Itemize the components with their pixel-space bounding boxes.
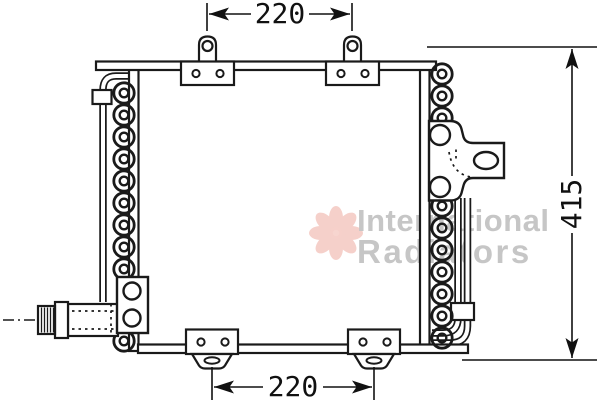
fitting-hex-nut <box>55 302 68 338</box>
technical-drawing-canvas: International Radiators <box>0 0 600 400</box>
fitting-thread <box>38 306 55 334</box>
dimension-label-height: 415 <box>555 179 588 230</box>
coil-loop <box>432 64 452 84</box>
pipe-junction-block <box>451 303 474 320</box>
mounting-bracket-bottom-right <box>348 330 400 369</box>
watermark-flower-logo <box>309 206 363 260</box>
inlet-fitting <box>3 277 148 338</box>
dimension-label-bottom: 220 <box>268 370 319 400</box>
coil-loop <box>432 284 452 304</box>
dimension-top-width: 220 <box>207 0 352 31</box>
top-header-bar <box>96 62 436 71</box>
dimension-bottom-width: 220 <box>212 367 374 400</box>
mounting-bracket-bottom-left <box>186 330 238 369</box>
right-header-tube <box>420 64 430 351</box>
dimension-label-top: 220 <box>255 0 306 30</box>
coil-loop <box>432 306 452 326</box>
mounting-bracket-top-right <box>326 37 379 86</box>
technical-drawing-page: International Radiators <box>0 0 600 400</box>
side-mounting-bracket <box>429 121 504 201</box>
mounting-bracket-top-left <box>181 37 234 86</box>
coil-loop <box>432 86 452 106</box>
fitting-plate <box>117 277 148 333</box>
pipe-clamp-block <box>93 90 112 104</box>
